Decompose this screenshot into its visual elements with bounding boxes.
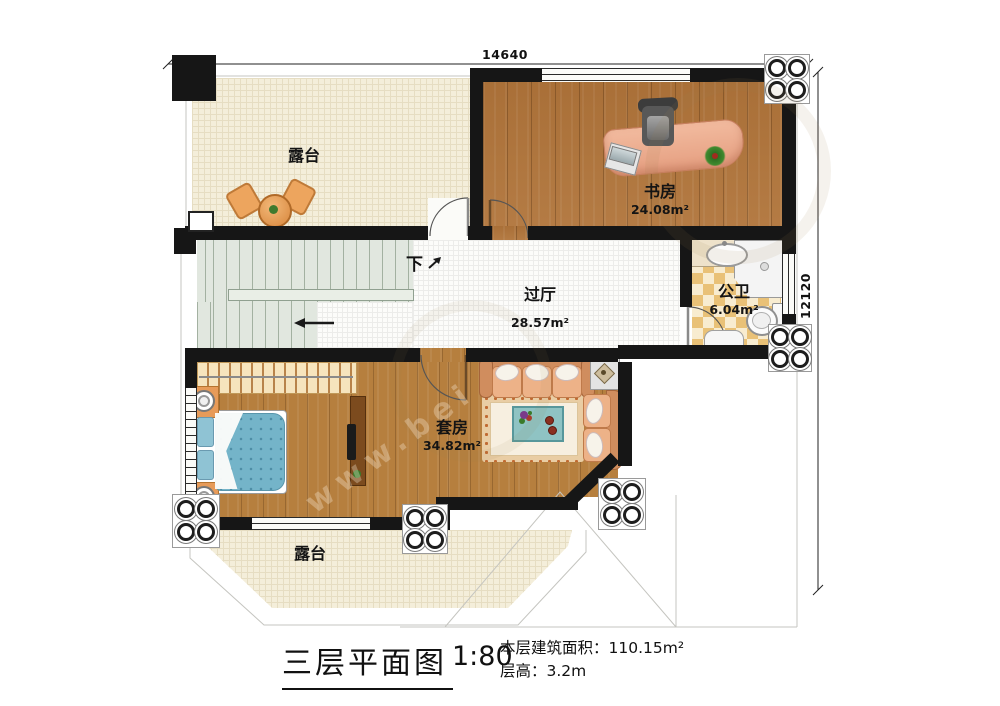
tv-icon (347, 424, 356, 460)
floor-height-line: 层高：3.2m (500, 659, 586, 681)
wall (468, 226, 492, 240)
hallway-floor-lower (317, 302, 413, 348)
stair-column (188, 211, 214, 232)
sofa-3seat-arm-left (479, 358, 493, 398)
coffee-table-flowers (520, 411, 528, 419)
patio-plant-icon (269, 205, 278, 214)
desk-plant-flower (712, 153, 718, 159)
stair-flight-lower (197, 302, 317, 348)
wall (782, 240, 796, 254)
floor-area-label: 本层建筑面积： (500, 639, 609, 657)
wall (185, 226, 428, 240)
wall (680, 240, 692, 307)
bathroom-label: 公卫 6.04m² (709, 282, 758, 318)
window-study-top (542, 68, 690, 82)
wall (470, 82, 483, 226)
wall (185, 362, 197, 388)
window-bathroom (782, 254, 796, 314)
wall (692, 226, 796, 240)
wall (466, 348, 618, 362)
terrace-bottom-floor (205, 530, 572, 608)
wall (618, 362, 632, 466)
stair-direction-label: 下 (406, 250, 423, 275)
bed-pillow-1 (197, 417, 214, 447)
column-group-bottom-left (172, 494, 220, 548)
door-recess (428, 198, 468, 240)
window-suite-left (185, 388, 197, 508)
terrace-bottom-label: 露台 (294, 544, 326, 564)
wall (448, 497, 578, 510)
stair-landing-rail (228, 289, 414, 301)
study-label: 书房 24.08m² (631, 182, 689, 218)
hallway-label: 过厅 28.57m² (511, 285, 569, 331)
floor-area-value: 110.15m² (609, 639, 685, 657)
floor-area-line: 本层建筑面积：110.15m² (500, 636, 684, 658)
study-doorway-floor (492, 226, 528, 240)
wardrobe (197, 362, 357, 394)
coffee-table-cup-2 (548, 426, 557, 435)
dimension-width: 14640 (440, 47, 570, 62)
coffee-table (512, 406, 564, 442)
column-group-terrace-right (402, 504, 448, 554)
plan-title: 三层平面图 (282, 638, 453, 690)
column-group-right (768, 324, 812, 372)
suite-label: 套房 34.82m² (423, 418, 481, 454)
shower-drain (760, 262, 769, 271)
desk-chair-cushion (647, 116, 669, 140)
floor-height-value: 3.2m (547, 662, 587, 680)
tv-plant-icon (353, 470, 361, 478)
floor-height-label: 层高： (500, 662, 547, 680)
wardrobe-rail (199, 376, 353, 378)
corner-table-dot (601, 370, 606, 375)
coffee-table-cup-1 (545, 416, 554, 425)
terrace-top-label: 露台 (288, 146, 320, 166)
wall (470, 68, 542, 82)
wall (528, 226, 692, 240)
sink-faucet (722, 241, 727, 246)
floorplan-canvas: 露台 书房 24.08m² 公卫 6.04m² 过厅 28.57m² 套房 34… (0, 0, 1000, 706)
bed-pillow-2 (197, 450, 214, 480)
column-group-top-right (764, 54, 810, 104)
right-dimension-ticks (813, 67, 823, 595)
suite-doorway-floor (420, 348, 466, 362)
sink-basin (706, 243, 748, 267)
wall (185, 348, 420, 362)
chimney-block (172, 55, 216, 101)
window-suite-bottom (252, 517, 370, 530)
column-group-suite-corner (598, 478, 646, 530)
